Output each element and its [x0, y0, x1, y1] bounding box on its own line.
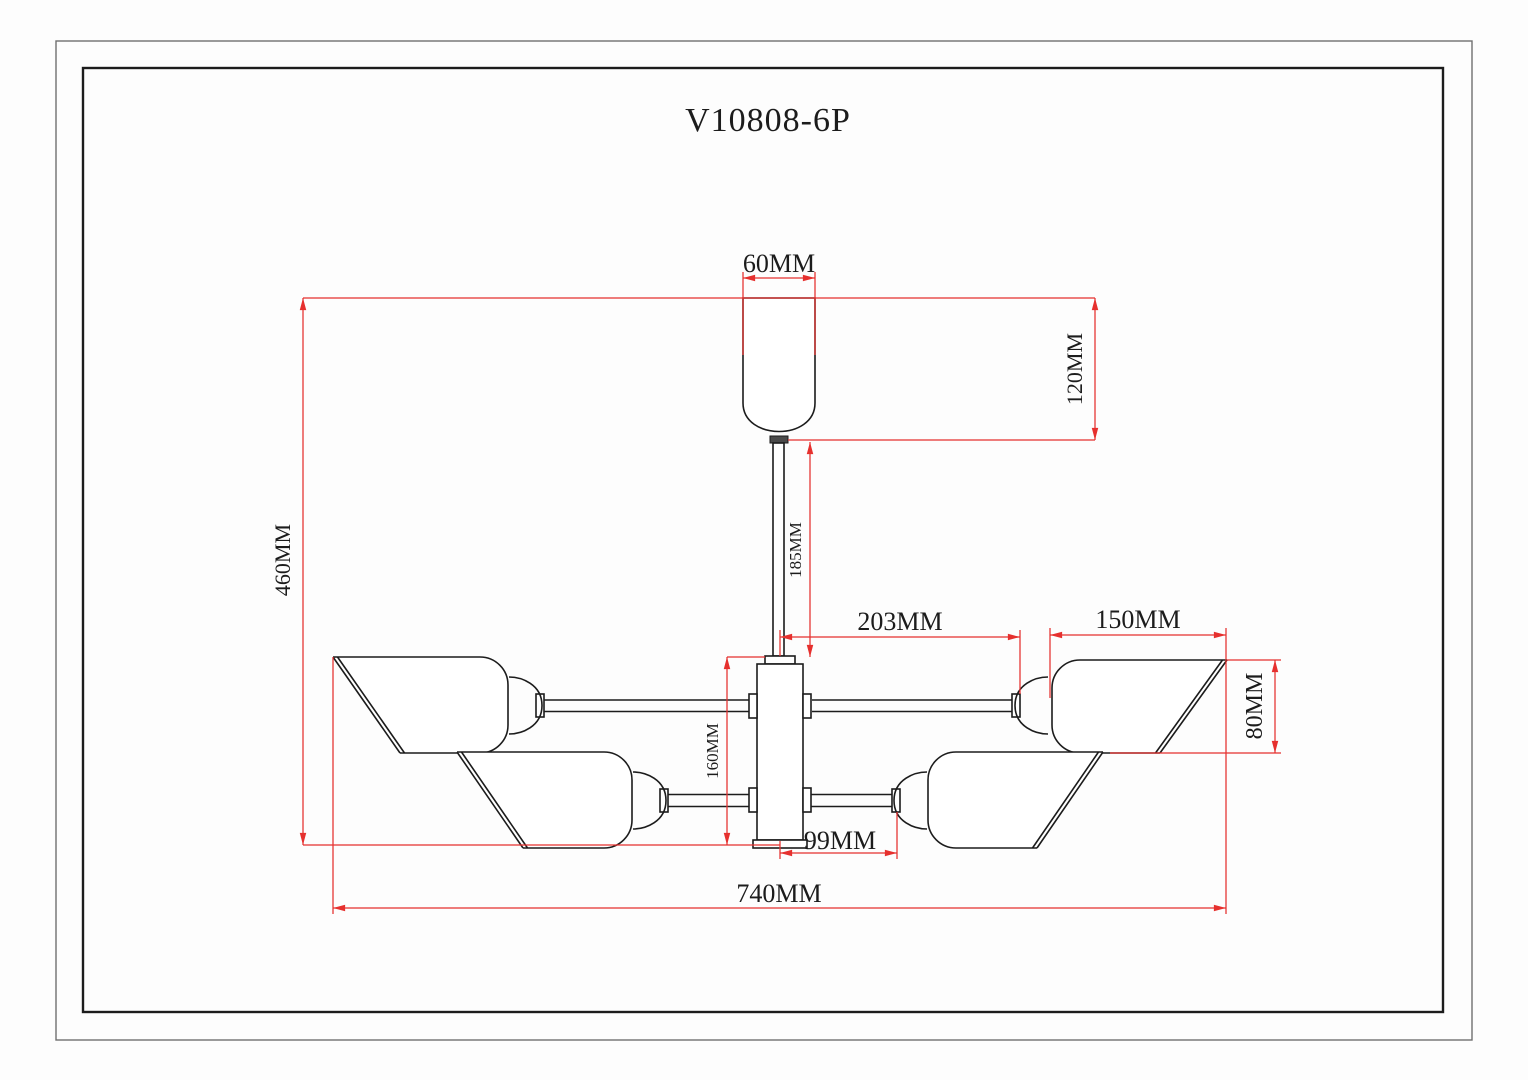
- lower-right-shade: [928, 752, 1103, 848]
- dim-60mm-label: 60MM: [743, 249, 815, 278]
- dim-150mm-label: 150MM: [1095, 605, 1180, 634]
- upper-right-arm-flange: [803, 694, 811, 718]
- dim-120mm-label: 120MM: [1062, 333, 1087, 405]
- cad-drawing: V10808-6P: [0, 0, 1528, 1080]
- upper-left-shade: [333, 657, 508, 753]
- dim-upper-arm-reach: 203MM: [780, 607, 1020, 694]
- ceiling-canopy: [743, 298, 815, 432]
- lower-left-shade: [457, 752, 632, 848]
- dim-99mm-label: 99MM: [804, 826, 876, 855]
- canopy-neck: [770, 436, 788, 443]
- upper-left-arm-flange: [749, 694, 757, 718]
- upper-right-shade: [1052, 660, 1227, 753]
- drawing-sheet: V10808-6P: [0, 0, 1528, 1080]
- dim-80mm-label: 80MM: [1242, 673, 1268, 740]
- dim-740mm-label: 740MM: [736, 879, 821, 908]
- upper-right-arm: [812, 677, 1048, 734]
- lower-left-arm-flange: [749, 788, 757, 812]
- dim-185mm-label: 185MM: [786, 522, 805, 578]
- dim-canopy-height: 120MM: [1062, 298, 1095, 440]
- lower-right-arm-flange: [803, 788, 811, 812]
- down-rod: [773, 443, 784, 656]
- light-fixture: [333, 298, 1227, 848]
- dim-203mm-label: 203MM: [857, 607, 942, 636]
- rod-flange: [765, 656, 795, 664]
- lower-right-arm: [811, 772, 927, 829]
- dim-body-height: 160MM: [703, 657, 765, 845]
- dim-rod-length: 185MM: [786, 442, 810, 657]
- central-body: [757, 664, 803, 840]
- dim-overall-height: 460MM: [270, 298, 303, 845]
- dim-460mm-label: 460MM: [270, 524, 295, 596]
- dim-160mm-label: 160MM: [703, 723, 722, 779]
- lower-left-arm: [633, 772, 749, 829]
- drawing-title: V10808-6P: [685, 102, 851, 139]
